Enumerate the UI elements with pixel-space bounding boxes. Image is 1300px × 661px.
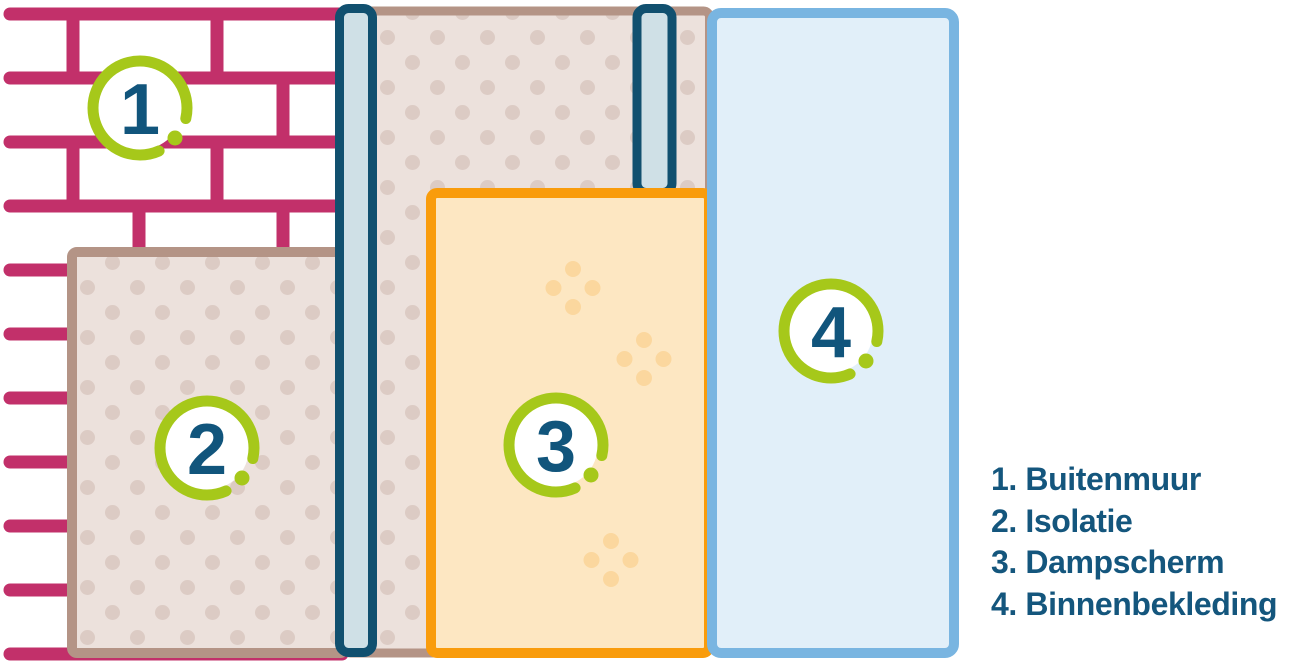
vapor-texture-dot bbox=[603, 571, 619, 587]
badge-3: 3 bbox=[509, 398, 603, 492]
legend: 1. Buitenmuur 2. Isolatie 3. Dampscherm … bbox=[991, 459, 1277, 625]
vapor-texture-dot bbox=[565, 299, 581, 315]
vapor-texture-dot bbox=[617, 351, 633, 367]
legend-item-dampscherm: 3. Dampscherm bbox=[991, 542, 1277, 584]
badge-2: 2 bbox=[160, 401, 254, 495]
vapor-texture-dot bbox=[584, 552, 600, 568]
badge-ring-dot bbox=[859, 354, 874, 369]
vapor-texture-dot bbox=[565, 261, 581, 277]
badge-4: 4 bbox=[784, 284, 878, 378]
badge-ring-dot bbox=[584, 468, 599, 483]
legend-item-buitenmuur: 1. Buitenmuur bbox=[991, 459, 1277, 501]
vapor-texture-dot bbox=[623, 552, 639, 568]
vapor-texture-dot bbox=[546, 280, 562, 296]
vapor-texture-dot bbox=[636, 332, 652, 348]
badge-number: 2 bbox=[187, 410, 227, 490]
wall-layers-diagram: 1 2 3 4 1. Buitenmuur 2. Isolatie 3. Dam… bbox=[0, 0, 1300, 661]
legend-item-isolatie: 2. Isolatie bbox=[991, 501, 1277, 543]
badge-ring-dot bbox=[235, 471, 250, 486]
legend-item-binnenbekleding: 4. Binnenbekleding bbox=[991, 584, 1277, 626]
left-stud bbox=[340, 9, 373, 653]
vapor-texture-dot bbox=[603, 533, 619, 549]
badge-number: 4 bbox=[811, 293, 851, 373]
vapor-texture-dot bbox=[636, 370, 652, 386]
badge-ring-dot bbox=[168, 131, 183, 146]
vapor-texture-dot bbox=[656, 351, 672, 367]
badge-1: 1 bbox=[93, 61, 187, 155]
right-stud bbox=[637, 9, 672, 193]
badge-number: 1 bbox=[120, 70, 160, 150]
badge-number: 3 bbox=[536, 407, 576, 487]
vapor-texture-dot bbox=[585, 280, 601, 296]
